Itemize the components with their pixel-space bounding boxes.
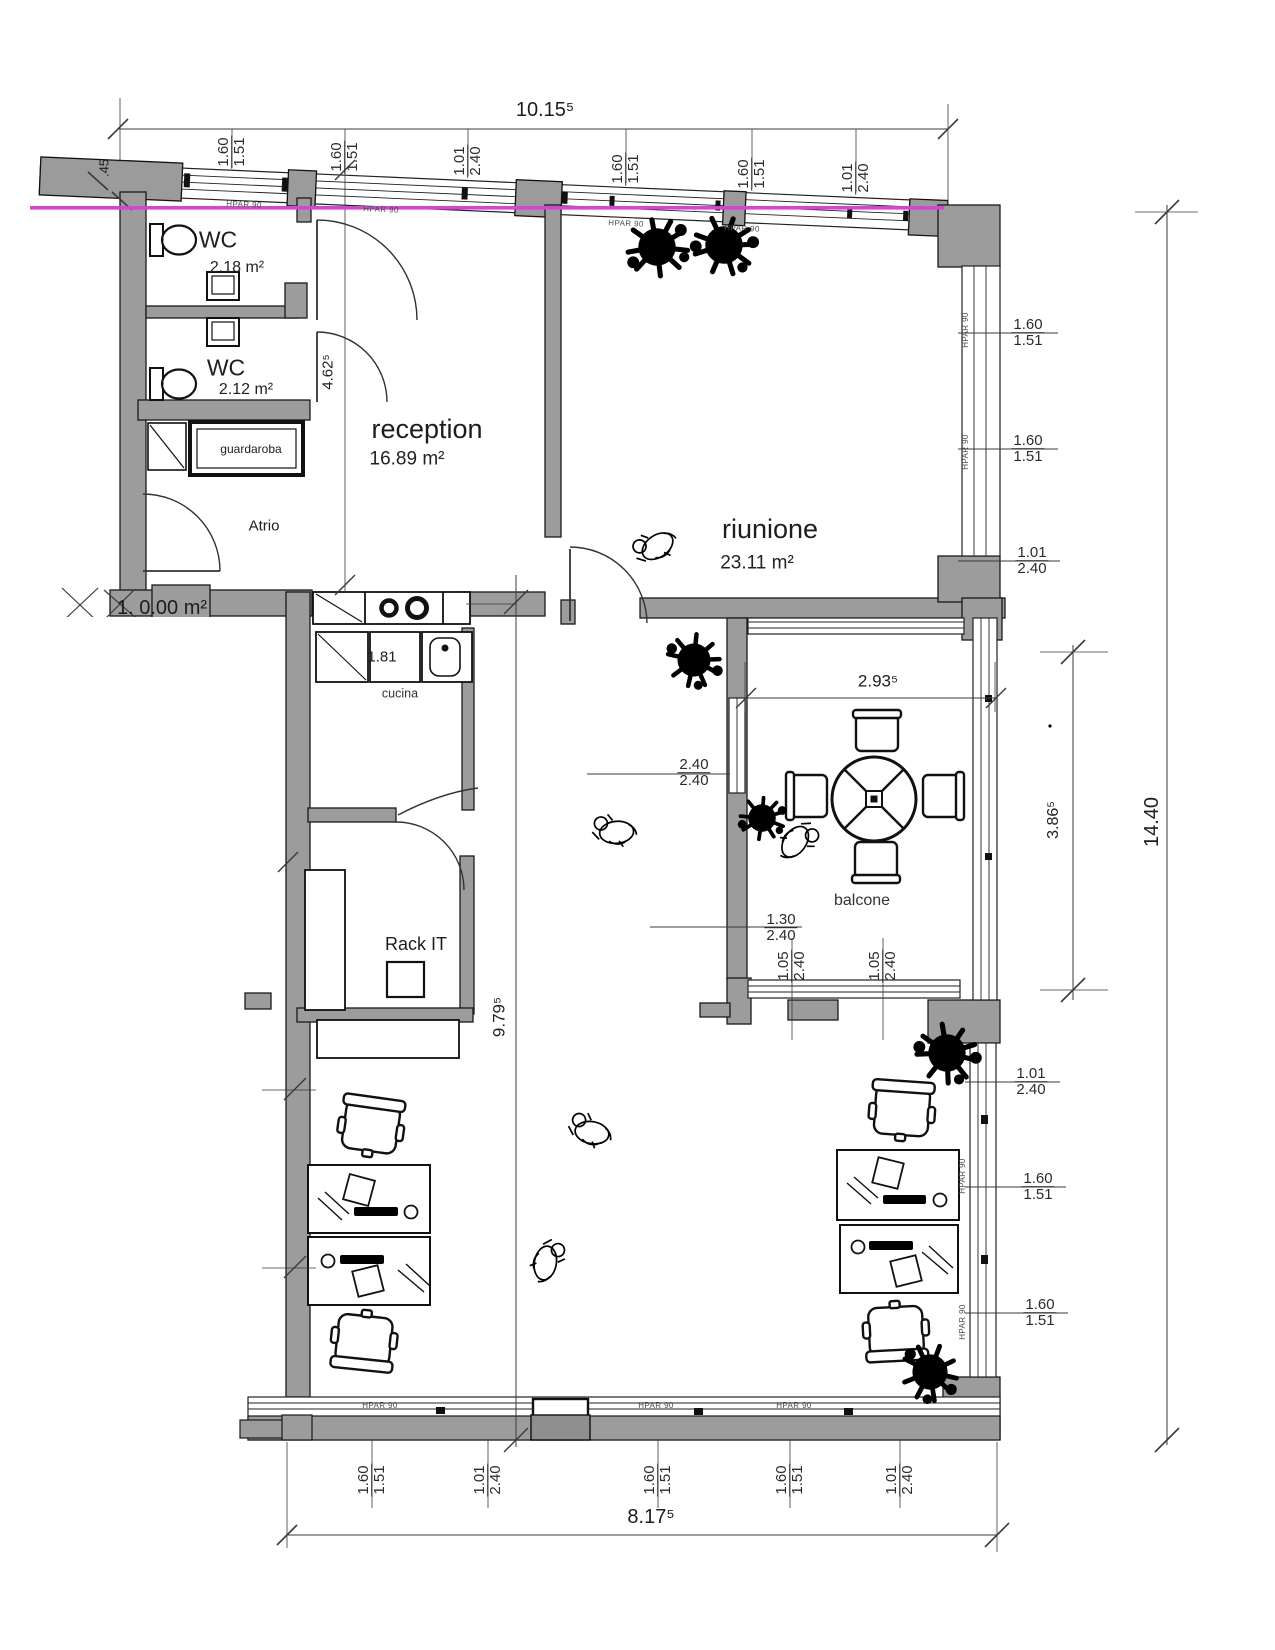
window-dim-top-3: 1.012.40 bbox=[452, 144, 484, 177]
room-label-unnamed: 1. 0.00 m² bbox=[117, 598, 207, 618]
room-area-wc1: 2.18 m² bbox=[210, 260, 264, 276]
window-dim-top-5: 1.601.51 bbox=[736, 157, 768, 190]
dim-interior-height: 9.79⁵ bbox=[490, 997, 507, 1037]
labels-layer: 10.15⁵ .45 14.40 3.86⁵ 2.93⁵ 9.79⁵ 4.62⁵… bbox=[0, 0, 1275, 1650]
balcone-bottom-dim-1: 1.052.40 bbox=[776, 949, 808, 982]
room-label-riunione: riunione bbox=[722, 516, 818, 544]
window-dim-right-1: 1.601.51 bbox=[1011, 317, 1044, 349]
room-area-wc2: 2.12 m² bbox=[219, 382, 273, 398]
window-dim-bottom-2: 1.012.40 bbox=[472, 1463, 504, 1496]
window-spec-label: HPAR 90 bbox=[959, 1158, 967, 1194]
dim-balcone-depth: 3.86⁵ bbox=[1046, 801, 1062, 839]
room-label-reception: reception bbox=[371, 416, 482, 444]
dim-overall-right: 14.40 bbox=[1142, 797, 1162, 847]
scan-white-patch bbox=[0, 617, 282, 669]
window-spec-label: HPAR 90 bbox=[362, 1402, 398, 1410]
window-dim-top-1: 1.601.51 bbox=[216, 135, 248, 168]
room-area-reception: 16.89 m² bbox=[370, 449, 445, 468]
balcone-bottom-dim-2: 1.052.40 bbox=[867, 949, 899, 982]
floor-plan: 10.15⁵ .45 14.40 3.86⁵ 2.93⁵ 9.79⁵ 4.62⁵… bbox=[0, 0, 1275, 1650]
window-spec-label: HPAR 90 bbox=[226, 200, 262, 210]
kitchen-counter-value: 1.81 bbox=[367, 649, 396, 664]
window-spec-label: HPAR 90 bbox=[962, 312, 970, 348]
window-dim-right-2: 1.601.51 bbox=[1011, 433, 1044, 465]
room-label-atrio: Atrio bbox=[249, 518, 280, 533]
window-spec-label: HPAR 90 bbox=[724, 224, 760, 234]
window-spec-label: HPAR 90 bbox=[776, 1402, 812, 1410]
window-spec-label: HPAR 90 bbox=[638, 1402, 674, 1410]
window-spec-label: HPAR 90 bbox=[608, 219, 644, 229]
window-dim-bottom-5: 1.012.40 bbox=[884, 1463, 916, 1496]
window-spec-label: HPAR 90 bbox=[363, 205, 399, 215]
window-dim-right-4: 1.012.40 bbox=[1014, 1066, 1047, 1098]
window-dim-bottom-1: 1.601.51 bbox=[356, 1463, 388, 1496]
room-label-guardaroba: guardaroba bbox=[220, 443, 281, 455]
dim-overall-bottom: 8.17⁵ bbox=[627, 1507, 674, 1527]
window-dim-right-5: 1.601.51 bbox=[1021, 1171, 1054, 1203]
dim-balcone-width: 2.93⁵ bbox=[858, 672, 898, 689]
room-label-rack-it: Rack IT bbox=[385, 935, 447, 953]
room-label-wc2: WC bbox=[207, 356, 245, 379]
room-label-balcone: balcone bbox=[834, 893, 890, 909]
window-dim-top-2: 1.601.51 bbox=[329, 140, 361, 173]
room-area-riunione: 23.11 m² bbox=[720, 553, 794, 572]
window-dim-bottom-3: 1.601.51 bbox=[642, 1463, 674, 1496]
window-dim-top-6: 1.012.40 bbox=[840, 161, 872, 194]
window-dim-right-3: 1.012.40 bbox=[1015, 545, 1048, 577]
window-spec-label: HPAR 90 bbox=[959, 1304, 967, 1340]
dim-overall-top: 10.15⁵ bbox=[516, 100, 574, 120]
window-dim-top-4: 1.601.51 bbox=[610, 152, 642, 185]
window-spec-label: HPAR 90 bbox=[962, 434, 970, 470]
dim-reception-depth: 4.62⁵ bbox=[320, 354, 335, 389]
balcone-bottom-total-dim: 1.302.40 bbox=[764, 912, 797, 944]
room-label-wc1: WC bbox=[199, 228, 237, 251]
dim-wall-stub: .45 bbox=[97, 159, 110, 177]
balcone-left-dim: 2.402.40 bbox=[677, 757, 710, 789]
window-dim-right-6: 1.601.51 bbox=[1023, 1297, 1056, 1329]
window-dim-bottom-4: 1.601.51 bbox=[774, 1463, 806, 1496]
room-label-cucina: cucina bbox=[382, 688, 418, 701]
